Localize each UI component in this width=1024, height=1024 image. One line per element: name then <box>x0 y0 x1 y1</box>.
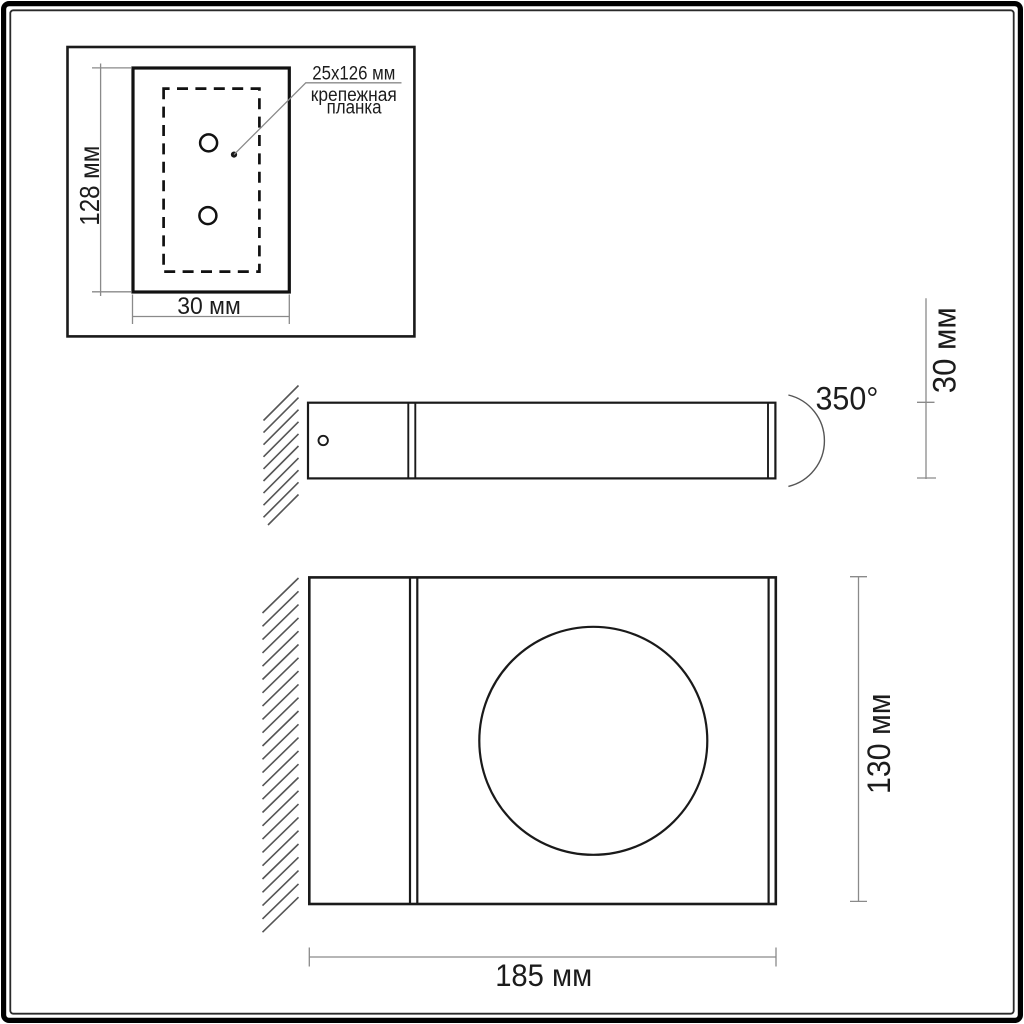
svg-text:25x126 мм: 25x126 мм <box>312 63 395 84</box>
svg-text:30 мм: 30 мм <box>927 307 963 393</box>
svg-text:185 мм: 185 мм <box>495 957 592 993</box>
svg-text:128 мм: 128 мм <box>74 146 105 226</box>
svg-text:планка: планка <box>327 97 382 119</box>
svg-text:350°: 350° <box>816 380 879 416</box>
svg-text:130 мм: 130 мм <box>861 693 897 794</box>
svg-text:30 мм: 30 мм <box>177 293 241 320</box>
